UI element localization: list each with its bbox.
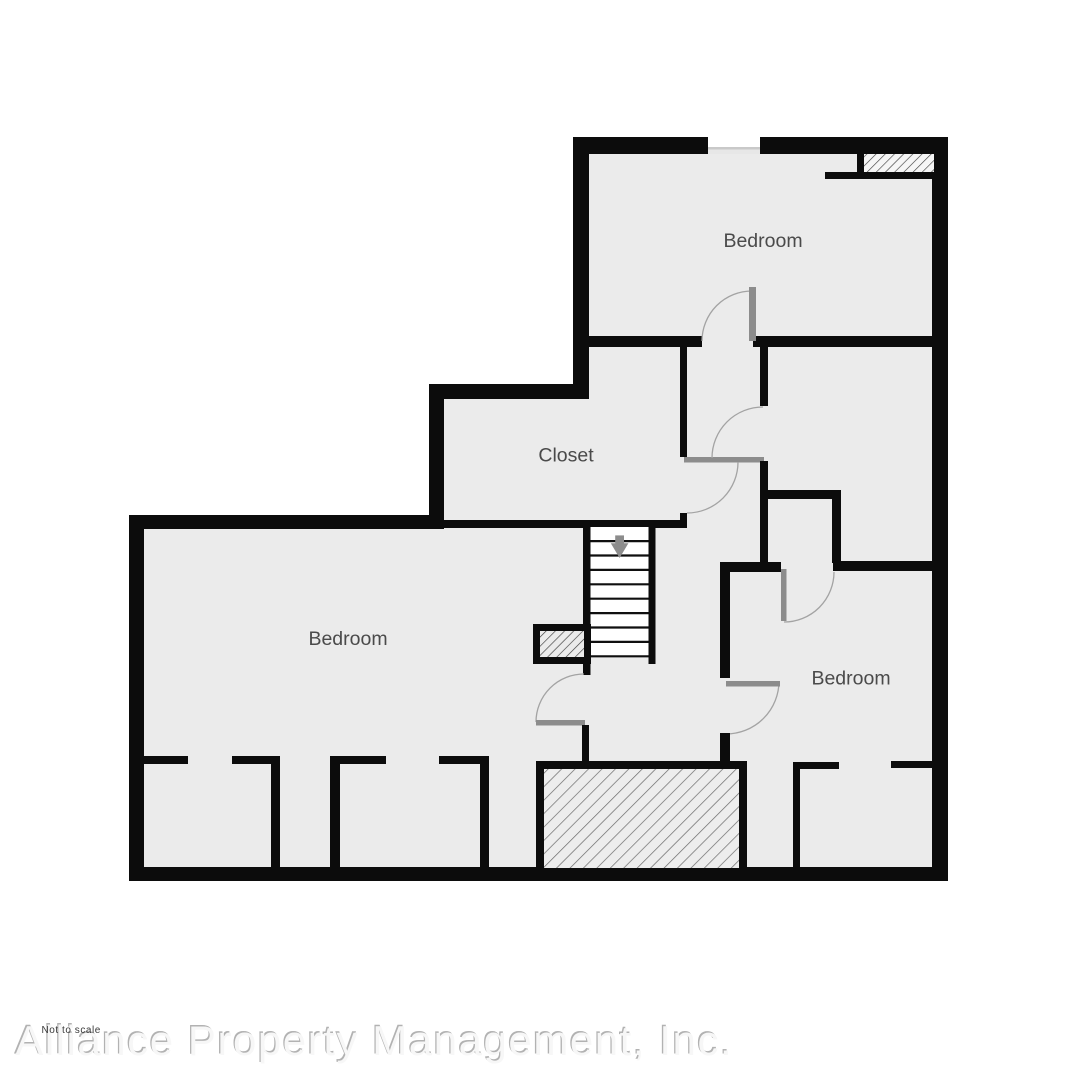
svg-text:Bedroom: Bedroom bbox=[723, 230, 802, 252]
svg-text:Alliance Property Management,: Alliance Property Management, Inc. bbox=[15, 1017, 733, 1064]
svg-text:Closet: Closet bbox=[538, 445, 594, 467]
svg-text:Bedroom: Bedroom bbox=[308, 628, 387, 650]
svg-text:Bedroom: Bedroom bbox=[811, 668, 890, 690]
svg-text:Not to scale: Not to scale bbox=[42, 1025, 101, 1036]
